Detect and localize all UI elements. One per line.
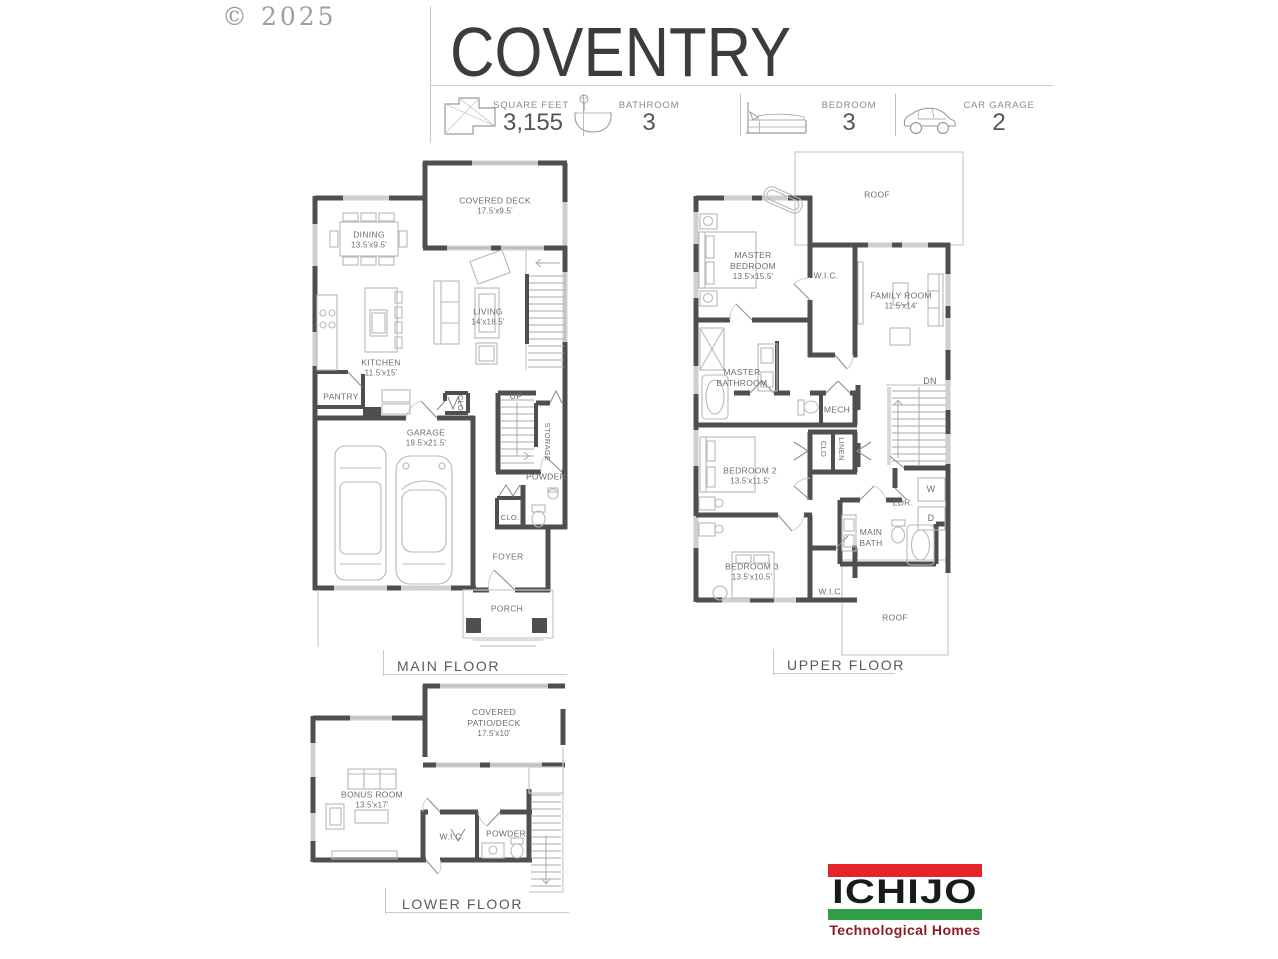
room-label-roof-upper: ROOF <box>864 189 890 200</box>
room-label-clo-foyer: CLO. <box>501 513 520 523</box>
stat-value-bathroom: 3 <box>642 109 655 137</box>
bed-icon <box>744 100 808 135</box>
stat-value-bedroom: 3 <box>842 109 855 137</box>
room-label-mech: MECH <box>824 404 850 415</box>
copyright-watermark: © 2025 <box>222 2 337 31</box>
room-label-kitchen: KITCHEN 11.5'x15' <box>361 357 400 378</box>
room-label-powder-lower: POWDER <box>486 828 526 839</box>
room-label-bedroom2: BEDROOM 2 13.5'x11.5' <box>723 465 777 486</box>
upper-floor-title-rule <box>773 649 774 675</box>
room-label-clo: CLO <box>818 441 828 457</box>
header-vertical-rule <box>430 6 431 143</box>
room-label-master-bathroom: MASTER BATHROOM <box>711 367 773 389</box>
room-label-up: UP <box>509 391 522 403</box>
room-label-garage: GARAGE 19.5'x21.5' <box>406 427 446 448</box>
stat-value-car-garage: 2 <box>992 109 1005 137</box>
upper-floor-plan: ROOF MASTER BEDROOM 13.5'x15.5' W.I.C. F… <box>690 148 965 658</box>
room-label-main-bath: MAIN BATH <box>854 527 888 549</box>
room-label-living: LIVING 14'x18.5' <box>471 306 504 327</box>
lower-floor-plan: COVERED PATIO/DECK 17.5'x10' BONUS ROOM … <box>310 683 575 918</box>
upper-floor-title: UPPER FLOOR <box>787 657 905 673</box>
room-label-pantry: PANTRY <box>323 391 359 402</box>
room-label-bonus-room: BONUS ROOM 13.5'x17' <box>341 789 403 810</box>
room-label-dn: DN <box>923 376 937 388</box>
logo-brand-text: ICHIJO <box>811 875 999 909</box>
lower-floor-title-rule <box>385 888 386 914</box>
ichijo-logo: ICHIJO Technological Homes <box>828 862 982 938</box>
room-label-roof-lower: ROOF <box>882 612 908 623</box>
washer-label: W <box>927 484 936 496</box>
plan-title: COVENTRY <box>450 12 791 92</box>
main-floor-plan-drawing <box>310 160 575 655</box>
logo-tagline: Technological Homes <box>828 922 982 938</box>
main-floor-title: MAIN FLOOR <box>397 658 500 674</box>
room-label-bedroom3: BEDROOM 3 13.5'x10.5' <box>725 561 779 582</box>
car-garage-icon <box>902 102 958 137</box>
header-horizontal-rule <box>430 85 1053 86</box>
room-label-family-room: FAMILY ROOM 11.5'x14' <box>870 290 932 311</box>
room-label-storage: STORAGE <box>542 423 552 462</box>
room-label-covered-deck: COVERED DECK 17.5'x9.5' <box>459 195 531 216</box>
stat-divider <box>740 94 741 136</box>
room-label-clo-garage: CLO <box>455 395 465 411</box>
dryer-label: D <box>928 513 935 525</box>
floorplan-sheet: © 2025 COVENTRY SQUARE FEET 3,155 BATHRO… <box>0 0 1278 959</box>
room-label-wic-lower: W.I.C. <box>440 831 465 842</box>
room-label-porch: PORCH <box>491 603 523 614</box>
main-floor-title-rule <box>383 650 384 676</box>
room-label-wic-bedroom3: W.I.C. <box>819 586 844 597</box>
lower-floor-title-underline <box>385 912 569 913</box>
bathtub-icon <box>572 93 614 135</box>
stat-divider <box>895 94 896 136</box>
logo-green-bar <box>828 909 982 920</box>
lower-floor-title: LOWER FLOOR <box>402 896 523 912</box>
room-label-foyer: FOYER <box>493 551 524 562</box>
stat-value-square-feet: 3,155 <box>503 109 563 137</box>
room-label-linen: LINEN <box>836 437 846 461</box>
room-label-wic-master: W.I.C. <box>814 270 839 281</box>
upper-floor-title-underline <box>773 673 895 674</box>
room-label-powder: POWDER <box>526 471 566 482</box>
room-label-ldr: LDR. <box>893 497 914 508</box>
floorplan-icon <box>443 96 497 136</box>
room-label-master-bedroom: MASTER BEDROOM 13.5'x15.5' <box>721 250 785 282</box>
main-floor-title-underline <box>383 674 567 675</box>
room-label-covered-patio: COVERED PATIO/DECK 17.5'x10' <box>461 707 527 739</box>
room-label-dining: DINING 13.5'x9.5' <box>351 229 387 250</box>
main-floor-plan: COVERED DECK 17.5'x9.5' DINING 13.5'x9.5… <box>310 160 575 655</box>
